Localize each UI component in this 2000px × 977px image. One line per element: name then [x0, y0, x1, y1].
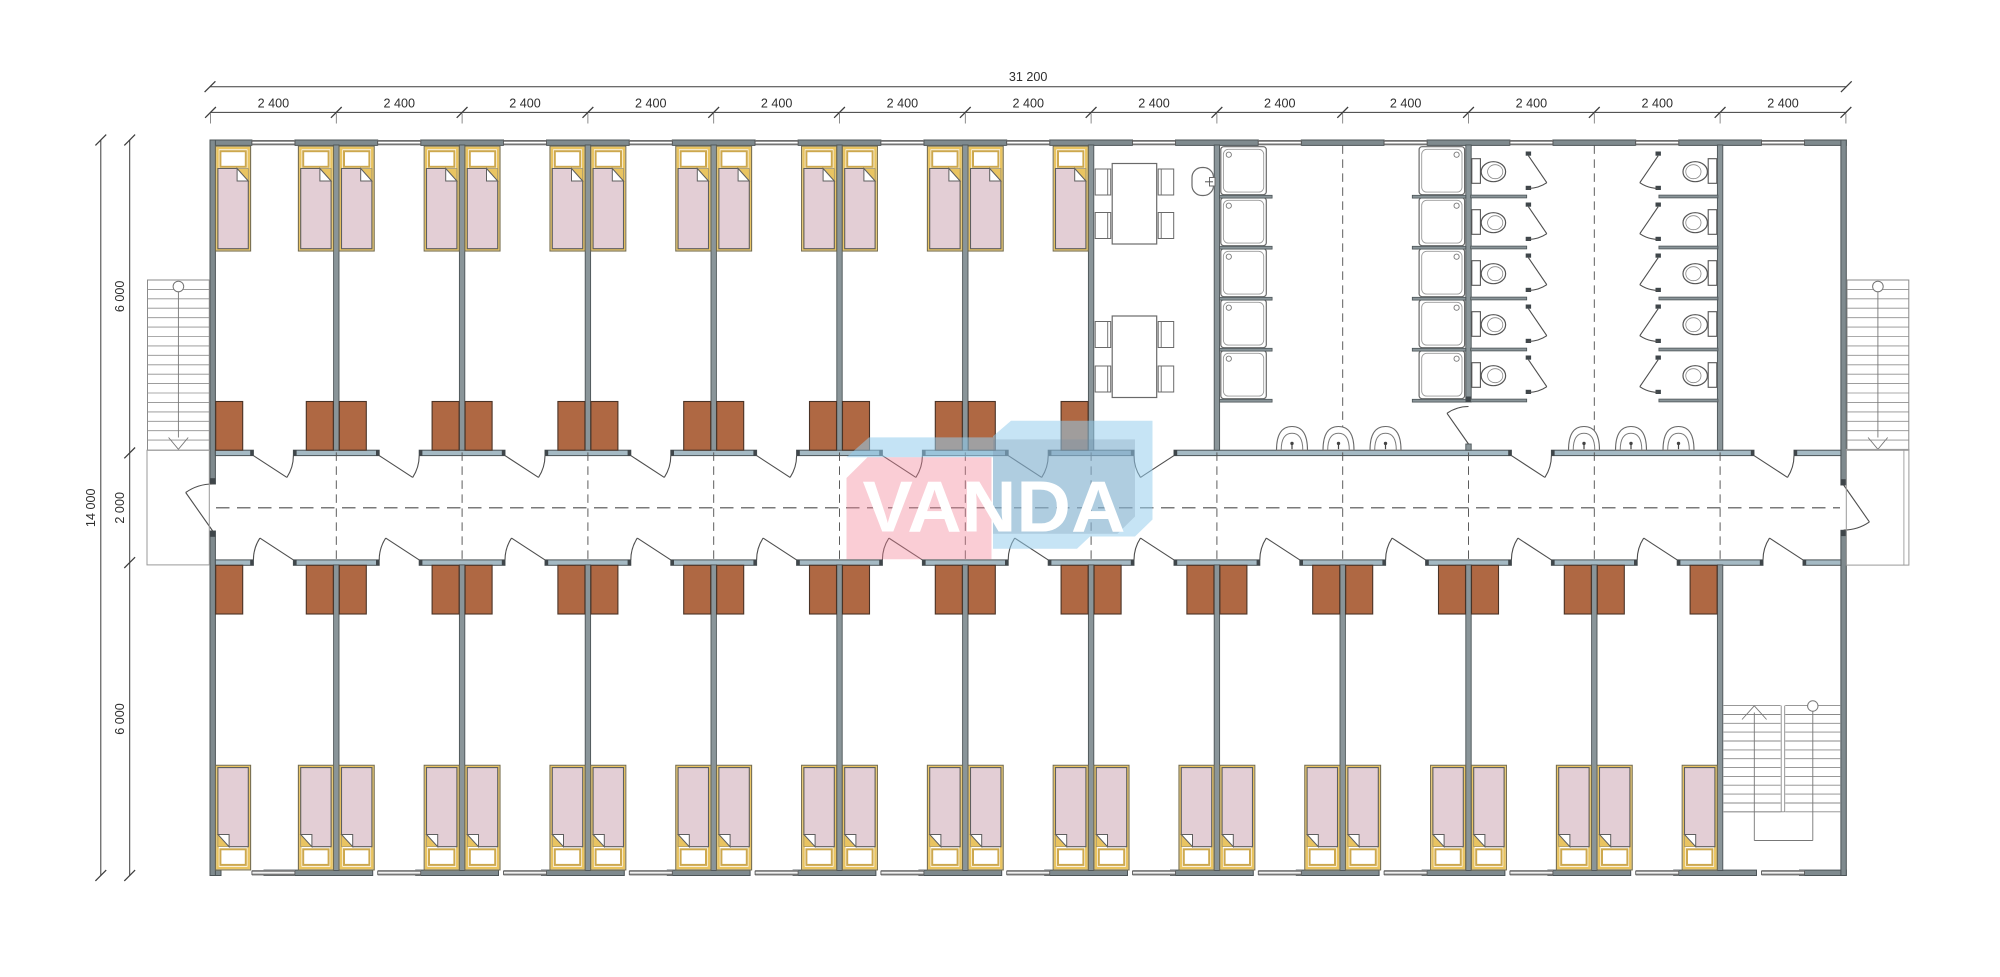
svg-text:2 400: 2 400	[1138, 97, 1170, 111]
svg-text:2 400: 2 400	[1641, 97, 1673, 111]
svg-text:6 000: 6 000	[113, 281, 127, 313]
svg-text:2 400: 2 400	[1390, 97, 1422, 111]
svg-text:6 000: 6 000	[113, 703, 127, 735]
svg-text:2 400: 2 400	[761, 97, 793, 111]
svg-text:2 400: 2 400	[887, 97, 919, 111]
svg-text:2 400: 2 400	[635, 97, 667, 111]
svg-text:2 400: 2 400	[1264, 97, 1296, 111]
svg-text:VANDA: VANDA	[863, 467, 1126, 548]
svg-text:2 400: 2 400	[258, 97, 290, 111]
svg-text:2 400: 2 400	[383, 97, 415, 111]
svg-text:14 000: 14 000	[84, 489, 98, 528]
svg-text:2 400: 2 400	[1516, 97, 1548, 111]
svg-text:2 400: 2 400	[1767, 97, 1799, 111]
svg-text:2 000: 2 000	[113, 492, 127, 524]
svg-text:2 400: 2 400	[1012, 97, 1044, 111]
svg-text:31 200: 31 200	[1009, 70, 1048, 84]
svg-text:2 400: 2 400	[509, 97, 541, 111]
